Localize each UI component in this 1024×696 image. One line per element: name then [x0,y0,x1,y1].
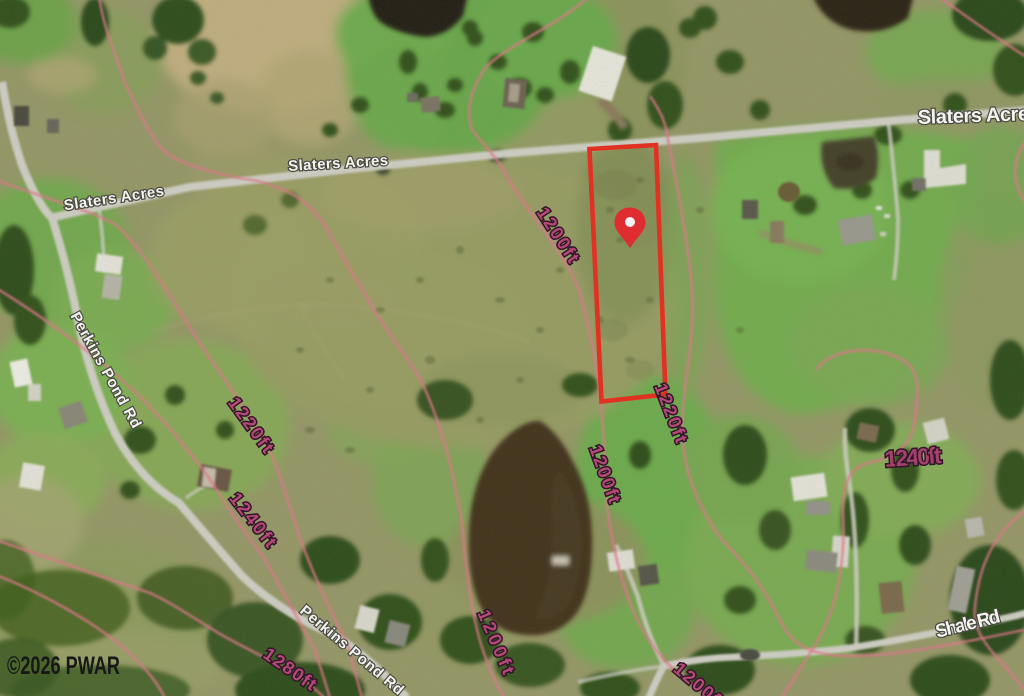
svg-text:©2026 PWAR: ©2026 PWAR [7,652,120,680]
